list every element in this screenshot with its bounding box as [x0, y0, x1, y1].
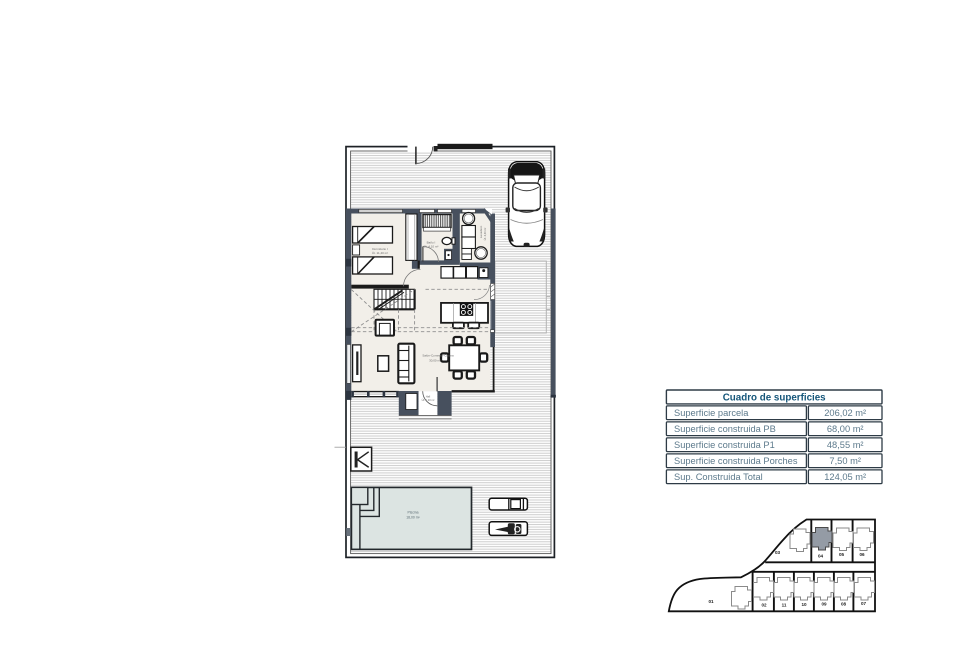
svg-text:11: 11	[782, 603, 787, 608]
svg-text:206,02 m²: 206,02 m²	[824, 408, 866, 418]
svg-text:Salón-Comedor-Cocina: Salón-Comedor-Cocina	[422, 354, 454, 358]
svg-text:04: 04	[818, 554, 824, 559]
svg-text:07: 07	[861, 601, 867, 606]
svg-text:08: 08	[841, 602, 847, 607]
svg-text:Út. 4,10 m²: Út. 4,10 m²	[424, 244, 439, 249]
svg-text:01: 01	[708, 599, 714, 604]
svg-text:Út. 11,40 m²: Út. 11,40 m²	[372, 250, 388, 255]
svg-text:02: 02	[761, 603, 767, 608]
svg-text:18,00 m²: 18,00 m²	[406, 516, 420, 520]
svg-text:Piscina: Piscina	[408, 511, 419, 515]
svg-text:30,00 m²: 30,00 m²	[429, 359, 441, 363]
svg-text:7,50 m²: 7,50 m²	[829, 456, 861, 466]
svg-text:05: 05	[839, 552, 845, 557]
svg-text:Superficie construida P1: Superficie construida P1	[674, 440, 775, 450]
svg-text:Superficie parcela: Superficie parcela	[674, 408, 749, 418]
svg-text:Sup. Construida Total: Sup. Construida Total	[674, 472, 763, 482]
svg-text:48,55 m²: 48,55 m²	[827, 440, 864, 450]
svg-text:03: 03	[775, 550, 781, 555]
svg-text:Superficie construida Porches: Superficie construida Porches	[674, 456, 798, 466]
svg-text:10: 10	[801, 602, 807, 607]
svg-text:Hall: Hall	[426, 395, 431, 399]
svg-text:Cuadro de superficies: Cuadro de superficies	[723, 392, 826, 403]
svg-text:09: 09	[821, 602, 827, 607]
svg-text:Superficie construida PB: Superficie construida PB	[674, 424, 776, 434]
svg-text:06: 06	[859, 552, 865, 557]
svg-text:124,05 m²: 124,05 m²	[824, 472, 866, 482]
svg-text:68,00 m²: 68,00 m²	[827, 424, 864, 434]
svg-text:Lavadero: Lavadero	[479, 225, 483, 238]
